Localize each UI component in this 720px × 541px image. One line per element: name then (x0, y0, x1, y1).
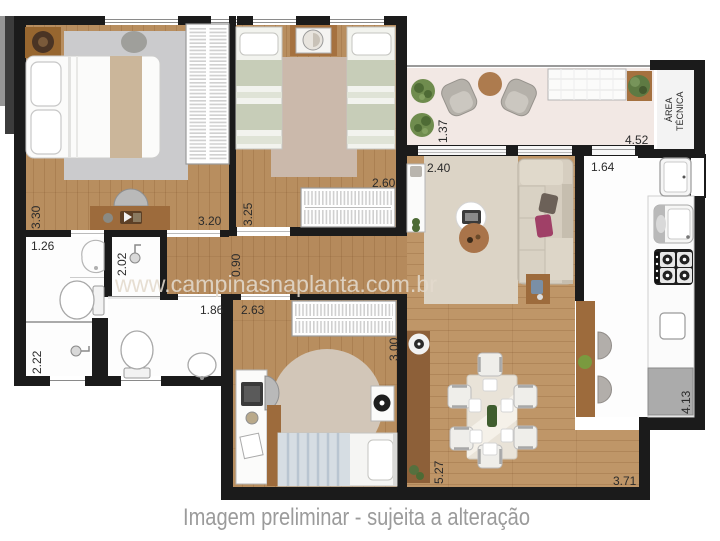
svg-text:1.86: 1.86 (200, 303, 224, 317)
svg-text:2.40: 2.40 (427, 161, 451, 175)
svg-text:4.13: 4.13 (679, 390, 693, 414)
svg-text:1.64: 1.64 (591, 160, 615, 174)
svg-text:3.71: 3.71 (613, 474, 637, 488)
svg-text:www.campinasnaplanta.com.br: www.campinasnaplanta.com.br (114, 271, 437, 297)
svg-text:3.30: 3.30 (29, 205, 43, 229)
svg-text:2.22: 2.22 (30, 350, 44, 374)
svg-text:5.27: 5.27 (432, 460, 446, 484)
svg-text:TÉCNICA: TÉCNICA (675, 91, 685, 131)
svg-text:4.52: 4.52 (625, 133, 649, 147)
svg-text:1.37: 1.37 (436, 119, 450, 143)
svg-text:1.26: 1.26 (31, 239, 55, 253)
svg-text:Imagem preliminar - sujeita a: Imagem preliminar - sujeita a alteração (183, 504, 530, 531)
svg-text:2.60: 2.60 (372, 176, 396, 190)
svg-text:3.20: 3.20 (198, 214, 222, 228)
svg-text:3.00: 3.00 (387, 337, 401, 361)
svg-text:2.63: 2.63 (241, 303, 265, 317)
svg-text:ÁREA: ÁREA (664, 97, 674, 122)
svg-text:3.25: 3.25 (241, 202, 255, 226)
